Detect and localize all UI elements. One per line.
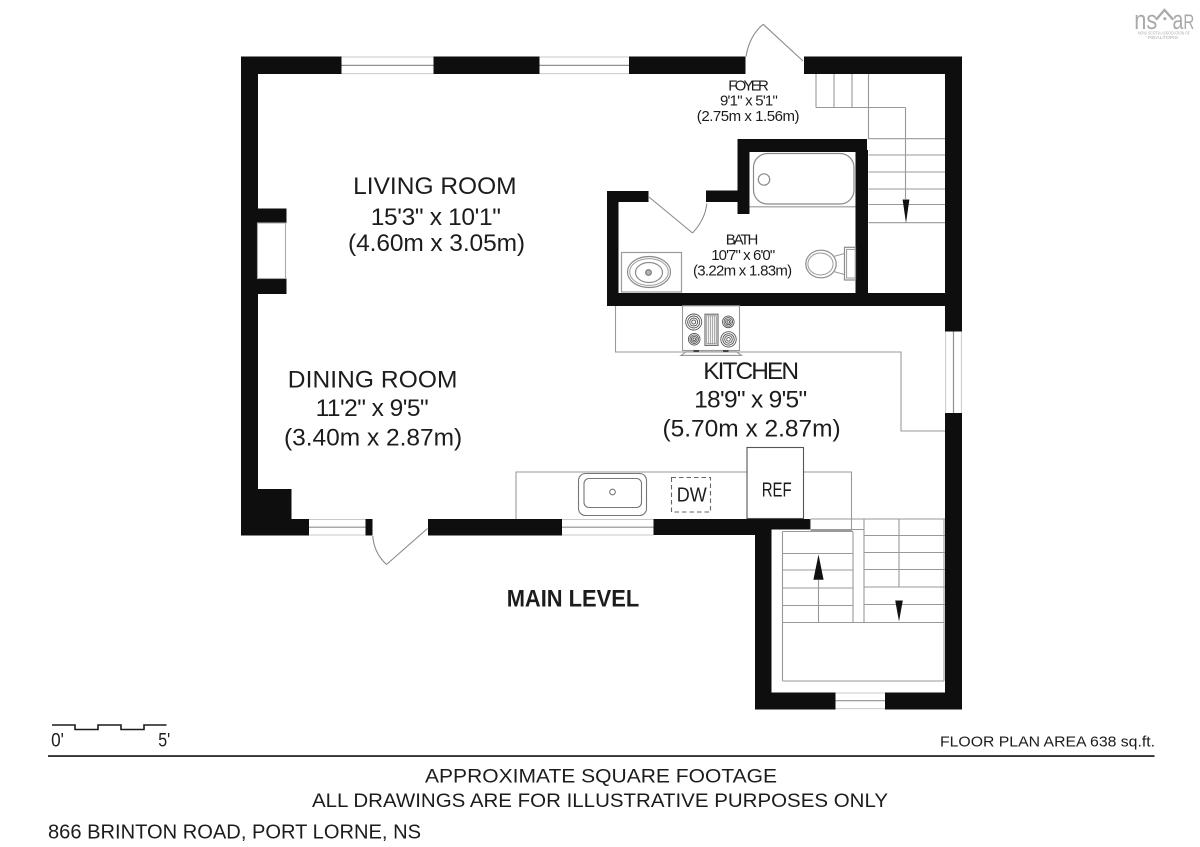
svg-text:5': 5': [158, 731, 170, 752]
svg-text:FLOOR PLAN AREA 638 sq.ft.: FLOOR PLAN AREA 638 sq.ft.: [940, 734, 1155, 751]
svg-text:MAIN LEVEL: MAIN LEVEL: [507, 586, 640, 613]
svg-text:15'3" x 10'1": 15'3" x 10'1": [371, 204, 501, 231]
svg-text:LIVING ROOM: LIVING ROOM: [353, 173, 516, 200]
svg-text:(4.60m x 3.05m): (4.60m x 3.05m): [348, 230, 525, 257]
svg-text:(5.70m x 2.87m): (5.70m x 2.87m): [663, 416, 841, 443]
svg-text:18'9" x 9'5": 18'9" x 9'5": [694, 387, 807, 414]
svg-text:DW: DW: [677, 485, 707, 507]
svg-text:REALTORS: REALTORS: [1148, 35, 1178, 40]
svg-text:9'1" x 5'1": 9'1" x 5'1": [720, 92, 778, 109]
svg-text:BATH: BATH: [726, 232, 759, 249]
svg-text:KITCHEN: KITCHEN: [703, 358, 799, 385]
svg-text:ALL DRAWINGS ARE FOR ILLUSTRAT: ALL DRAWINGS ARE FOR ILLUSTRATIVE PURPOS…: [312, 790, 888, 812]
svg-text:11'2" x 9'5": 11'2" x 9'5": [316, 395, 429, 422]
svg-text:APPROXIMATE SQUARE FOOTAGE: APPROXIMATE SQUARE FOOTAGE: [425, 766, 777, 788]
svg-text:10'7" x 6'0": 10'7" x 6'0": [711, 247, 775, 264]
svg-text:REF: REF: [762, 480, 792, 502]
svg-text:866 BRINTON ROAD, PORT LORNE,: 866 BRINTON ROAD, PORT LORNE, NS: [48, 821, 421, 844]
svg-text:0': 0': [51, 731, 64, 752]
svg-text:(3.22m x 1.83m): (3.22m x 1.83m): [693, 263, 792, 280]
svg-text:(2.75m x 1.56m): (2.75m x 1.56m): [697, 108, 800, 125]
svg-text:DINING ROOM: DINING ROOM: [288, 367, 458, 394]
svg-text:(3.40m x 2.87m): (3.40m x 2.87m): [284, 425, 462, 452]
